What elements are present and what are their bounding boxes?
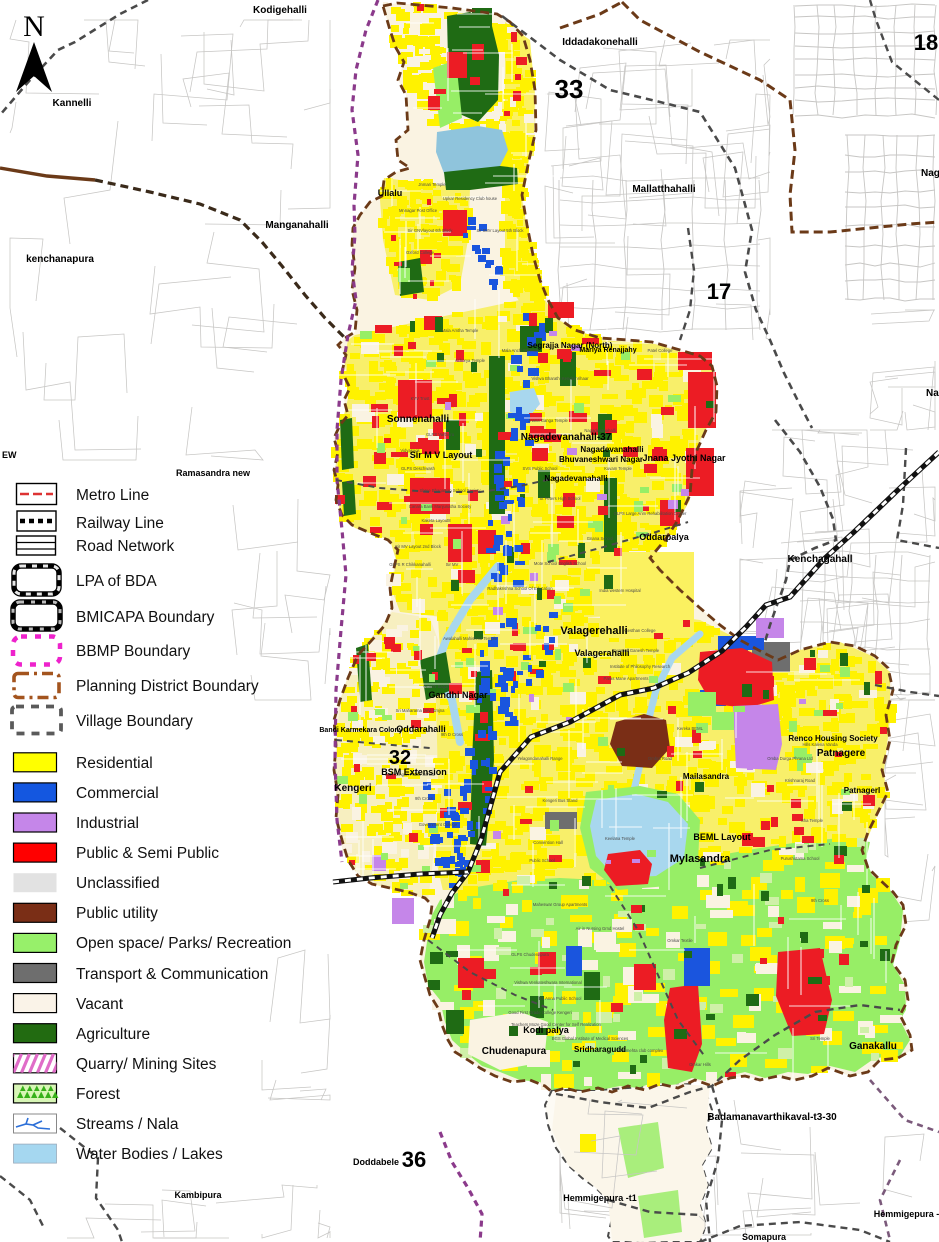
svg-text:KVV Trust: KVV Trust — [411, 396, 431, 401]
svg-text:Kengeri Bus Stand: Kengeri Bus Stand — [543, 798, 579, 803]
svg-text:India western Hospital: India western Hospital — [599, 588, 640, 593]
svg-text:Transport & Communication: Transport & Communication — [76, 966, 268, 983]
svg-text:Canara Bank Manjunatha Society: Canara Bank Manjunatha Society — [409, 504, 472, 509]
svg-text:Chudenapura: Chudenapura — [482, 1046, 547, 1057]
svg-text:Industrial: Industrial — [76, 815, 139, 832]
svg-text:Manganahalli: Manganahalli — [265, 220, 329, 231]
svg-text:Planning District Boundary: Planning District Boundary — [76, 678, 259, 695]
svg-text:Convention Hall: Convention Hall — [533, 840, 563, 845]
svg-text:Agriculture: Agriculture — [76, 1026, 150, 1043]
svg-text:BS Anna Public School: BS Anna Public School — [539, 996, 582, 1001]
svg-text:Quarry/ Mining Sites: Quarry/ Mining Sites — [76, 1056, 217, 1073]
svg-text:33: 33 — [555, 74, 584, 104]
svg-text:Good First Grade College Kenge: Good First Grade College Kengeri — [508, 1010, 571, 1015]
svg-text:Kengeri: Kengeri — [334, 783, 371, 794]
svg-text:Omba Durga Phrana Ltd: Omba Durga Phrana Ltd — [767, 756, 813, 761]
svg-text:SVS Public School: SVS Public School — [523, 466, 558, 471]
svg-text:Mala Amtha Temple: Mala Amtha Temple — [442, 328, 479, 333]
svg-text:Badamanavarthikaval-t3-30: Badamanavarthikaval-t3-30 — [707, 1112, 837, 1123]
svg-text:Renco Housing Society: Renco Housing Society — [788, 734, 878, 743]
svg-text:Kenchagahall: Kenchagahall — [787, 554, 852, 565]
svg-text:Road Network: Road Network — [76, 538, 174, 555]
svg-text:BBMP Boundary: BBMP Boundary — [76, 643, 191, 660]
svg-text:Sir MV Layout 2nd Block: Sir MV Layout 2nd Block — [395, 544, 442, 549]
svg-text:Ramasandra new: Ramasandra new — [176, 468, 251, 478]
svg-text:Railway Line: Railway Line — [76, 515, 164, 532]
svg-text:Sir M V Layout: Sir M V Layout — [410, 450, 473, 460]
svg-text:Omkar Hills: Omkar Hills — [689, 1062, 711, 1067]
svg-text:LPA of BDA: LPA of BDA — [76, 573, 157, 590]
svg-text:Jnana Jyothi Nagar: Jnana Jyothi Nagar — [642, 453, 726, 463]
svg-text:Sha Temple: Sha Temple — [801, 818, 824, 823]
svg-text:Gesthan College: Gesthan College — [624, 628, 656, 633]
svg-text:Kannelli: Kannelli — [53, 98, 92, 109]
svg-text:Metro Line: Metro Line — [76, 487, 149, 504]
svg-text:Gandhi Nagar: Gandhi Nagar — [428, 690, 488, 700]
svg-text:Doddabele: Doddabele — [353, 1157, 399, 1167]
svg-text:Paras Mane Apartments: Paras Mane Apartments — [604, 676, 649, 681]
svg-text:GLPS Varthuru: GLPS Varthuru — [426, 432, 455, 437]
svg-text:Institute of Philosophy Resear: Institute of Philosophy Research — [610, 664, 671, 669]
svg-text:Valagerehalli: Valagerehalli — [560, 625, 627, 637]
svg-text:Omkar Textile: Omkar Textile — [667, 938, 693, 943]
svg-text:Residential: Residential — [76, 755, 153, 772]
svg-text:Sir 8MV Layout 5th Block: Sir 8MV Layout 5th Block — [476, 228, 524, 233]
svg-text:Sridharagudd: Sridharagudd — [574, 1045, 626, 1054]
svg-text:Public utility: Public utility — [76, 905, 158, 922]
svg-text:Mailasandra: Mailasandra — [683, 772, 730, 781]
svg-text:Oddarpalya: Oddarpalya — [639, 532, 690, 542]
svg-text:Ombra Road: Ombra Road — [648, 756, 673, 761]
svg-text:Kereka BEML: Kereka BEML — [677, 726, 704, 731]
svg-text:Sir GNVlayout 6th Block: Sir GNVlayout 6th Block — [408, 228, 454, 233]
svg-text:Public School: Public School — [529, 858, 554, 863]
svg-text:Vishva Bharathi Kendra Vihaar: Vishva Bharathi Kendra Vihaar — [531, 376, 589, 381]
svg-text:Iddadakonehalli: Iddadakonehalli — [562, 37, 638, 48]
svg-text:Patnagerl: Patnagerl — [844, 786, 880, 795]
svg-text:Nagarabh: Nagarabh — [921, 168, 939, 179]
svg-text:Upkar Residency Club house: Upkar Residency Club house — [443, 196, 498, 201]
svg-text:Public & Semi Public: Public & Semi Public — [76, 845, 219, 862]
svg-text:Village Boundary: Village Boundary — [76, 713, 193, 730]
svg-text:Yelagondanahalli Range: Yelagondanahalli Range — [517, 756, 563, 761]
svg-text:Hemmigepura -t: Hemmigepura -t — [874, 1209, 939, 1219]
svg-text:kenchanapura: kenchanapura — [26, 254, 94, 265]
svg-text:Gchchi Sagar: Gchchi Sagar — [423, 684, 449, 689]
svg-text:Nayand: Nayand — [926, 388, 939, 399]
svg-text:Ganakallu: Ganakallu — [849, 1041, 897, 1052]
svg-text:Air in Nursing Grnd Hostel: Air in Nursing Grnd Hostel — [576, 926, 625, 931]
svg-text:Mote School English School: Mote School English School — [534, 561, 586, 566]
svg-text:18: 18 — [914, 30, 938, 55]
svg-text:Vishwa Venkateshwara Internati: Vishwa Venkateshwara International — [514, 980, 582, 985]
svg-text:Nagadevanahalli: Nagadevanahalli — [544, 474, 607, 483]
svg-text:Bhuvaneshwari Nagar: Bhuvaneshwari Nagar — [559, 455, 643, 464]
svg-text:BSM Extension: BSM Extension — [381, 767, 447, 777]
svg-text:Awalahalli Mahishma Temple: Awalahalli Mahishma Temple — [443, 636, 498, 641]
svg-text:GLPS Large Anm Rehabilitation: GLPS Large Anm Rehabilitation Center — [614, 511, 687, 516]
svg-text:Mnnagar Post Office: Mnnagar Post Office — [399, 208, 438, 213]
svg-text:EW: EW — [2, 450, 17, 460]
svg-text:9th Cross: 9th Cross — [415, 796, 433, 801]
svg-text:BEML Layout: BEML Layout — [693, 832, 750, 842]
svg-text:Patel College: Patel College — [648, 348, 674, 353]
svg-text:Jnmari Temple: Jnmari Temple — [418, 182, 446, 187]
svg-text:Kaketa Layout8: Kaketa Layout8 — [421, 518, 451, 523]
svg-text:Government College: Government College — [419, 822, 458, 827]
svg-text:BGS Global Institute of Medica: BGS Global Institute of Medical Sciences — [552, 1036, 628, 1041]
svg-text:Vacant: Vacant — [76, 996, 124, 1013]
svg-text:Mylasandra: Mylasandra — [670, 853, 731, 865]
svg-text:Ullalu: Ullalu — [378, 188, 403, 198]
svg-text:32: 32 — [389, 747, 411, 769]
svg-text:Commercial: Commercial — [76, 785, 159, 802]
svg-text:Sri Maharama Devi Smjna: Sri Maharama Devi Smjna — [396, 708, 446, 713]
svg-text:Krishnaraj Road: Krishnaraj Road — [785, 778, 816, 783]
svg-text:36: 36 — [402, 1147, 426, 1172]
svg-text:St Peters High School: St Peters High School — [540, 496, 581, 501]
svg-text:Radhakrishna School Of Educati: Radhakrishna School Of Education — [487, 586, 553, 591]
svg-text:17: 17 — [707, 279, 731, 304]
svg-text:GLPS Deschwash: GLPS Deschwash — [401, 466, 436, 471]
svg-text:Purushotama School: Purushotama School — [781, 856, 820, 861]
svg-text:BMICAPA Boundary: BMICAPA Boundary — [76, 609, 215, 626]
svg-text:Valagerahalli: Valagerahalli — [574, 648, 629, 658]
svg-text:Sonnenahalli: Sonnenahalli — [387, 414, 449, 425]
svg-text:Kodigehalli: Kodigehalli — [253, 5, 307, 16]
svg-text:Nagadevanahall-37: Nagadevanahall-37 — [521, 432, 612, 443]
svg-text:Somapura: Somapura — [742, 1232, 787, 1242]
svg-text:Kuvam Temple: Kuvam Temple — [604, 466, 632, 471]
svg-text:Jnana Ganga Temple: Jnana Ganga Temple — [528, 418, 568, 423]
svg-text:Maheswar Group Apartments: Maheswar Group Apartments — [533, 902, 587, 907]
svg-text:Mariya Renajjahy: Mariya Renajjahy — [579, 347, 636, 354]
svg-text:Keelana Temple: Keelana Temple — [605, 836, 636, 841]
svg-text:Mallatthahalli: Mallatthahalli — [632, 184, 696, 195]
svg-text:Hemmigepura -t1: Hemmigepura -t1 — [563, 1193, 637, 1203]
svg-text:Shree Bhagawan School Society: Shree Bhagawan School Society — [420, 488, 482, 493]
svg-text:Bandi Karmekara Colony: Bandi Karmekara Colony — [319, 727, 402, 734]
svg-text:Kodi palya: Kodi palya — [523, 1025, 570, 1035]
svg-text:Achorya Temple: Achorya Temple — [455, 358, 486, 363]
svg-text:Sir MV: Sir MV — [446, 562, 459, 567]
svg-text:Forest: Forest — [76, 1086, 121, 1103]
svg-text:Streams / Nala: Streams / Nala — [76, 1116, 179, 1133]
svg-text:N: N — [23, 10, 45, 43]
svg-text:Unclassified: Unclassified — [76, 875, 160, 892]
svg-text:Nagadevanahalli: Nagadevanahalli — [580, 445, 643, 454]
svg-text:Open space/ Parks/ Recreation: Open space/ Parks/ Recreation — [76, 935, 291, 952]
svg-text:Kambipura: Kambipura — [174, 1190, 222, 1200]
svg-text:Oxford College: Oxford College — [406, 250, 435, 255]
svg-text:Sri Temple: Sri Temple — [810, 1036, 830, 1041]
svg-text:Gnana School: Gnana School — [587, 536, 614, 541]
svg-text:GLPS Chudenapura: GLPS Chudenapura — [511, 952, 549, 957]
svg-text:Patnagere: Patnagere — [817, 748, 866, 759]
svg-text:Oddarahalli: Oddarahalli — [396, 724, 446, 734]
svg-text:GLPS R Chikkanahalli: GLPS R Chikkanahalli — [389, 562, 430, 567]
svg-text:Water Bodies / Lakes: Water Bodies / Lakes — [76, 1146, 223, 1163]
svg-text:9th Cross: 9th Cross — [811, 898, 829, 903]
